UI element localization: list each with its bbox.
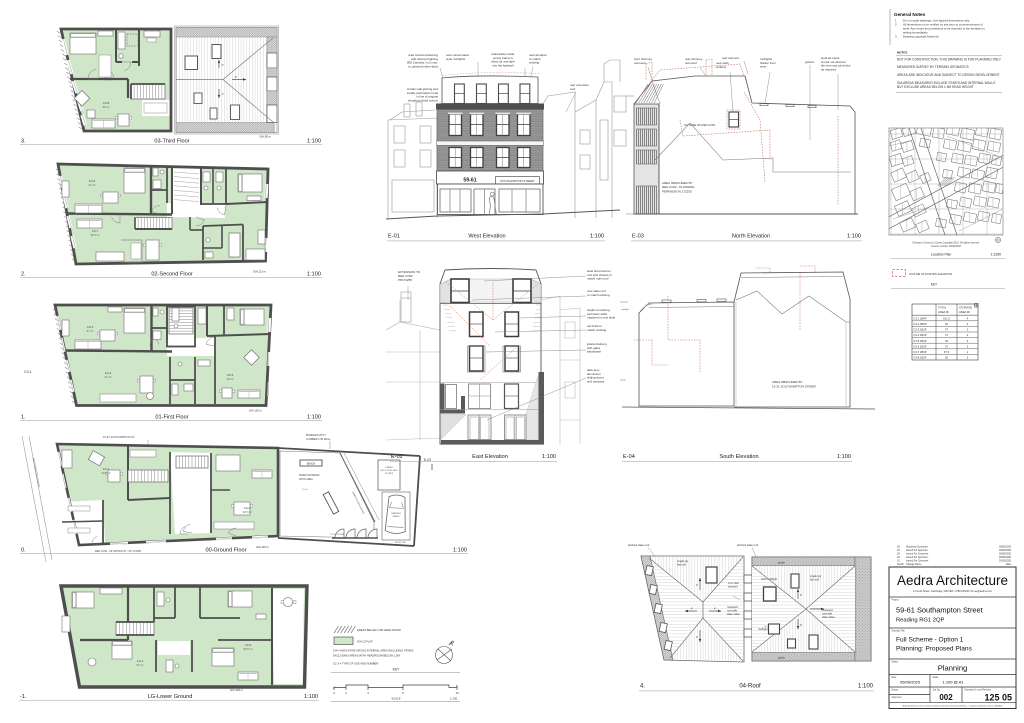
svg-text:AREA OBSCURED BY: AREA OBSCURED BY — [772, 380, 803, 384]
svg-text:PERMISSION 172255: PERMISSION 172255 — [662, 189, 692, 193]
svg-text:03-Third Floor: 03-Third Floor — [154, 139, 189, 145]
svg-text:West Elevation: West Elevation — [468, 234, 505, 240]
svg-text:04-Roof: 04-Roof — [739, 684, 761, 690]
svg-text:RECYCLING BINS: RECYCLING BINS — [381, 470, 399, 472]
svg-text:RevID: RevID — [897, 563, 904, 566]
svg-text:1:100: 1:100 — [590, 234, 604, 240]
svg-text:GIA C3 FLAT: GIA C3 FLAT — [357, 640, 373, 644]
svg-text:STORAGE: STORAGE — [959, 306, 972, 310]
svg-text:2.: 2. — [21, 272, 26, 278]
svg-text:flat roof: flat roof — [810, 577, 819, 581]
svg-text:40.5 m²: 40.5 m² — [243, 510, 252, 514]
svg-text:SCALE: SCALE — [391, 697, 400, 701]
svg-text:to painted timber facia: to painted timber facia — [408, 64, 438, 68]
svg-text:matched in new build: matched in new build — [587, 316, 616, 320]
svg-text:C3-3 1B1P: C3-3 1B1P — [913, 328, 926, 332]
svg-text:KEY: KEY — [931, 283, 938, 287]
svg-text:1:1250: 1:1250 — [991, 252, 1001, 256]
svg-text:Drawing copyright Aedra ltd.: Drawing copyright Aedra ltd. — [903, 35, 939, 39]
svg-text:52.5 m²: 52.5 m² — [91, 233, 100, 237]
svg-text:C3-6: C3-6 — [89, 179, 96, 183]
svg-text:C1-3 = TYPE OF USE AND NUMBER: C1-3 = TYPE OF USE AND NUMBER — [333, 662, 378, 666]
svg-text:4°: 4° — [800, 594, 802, 597]
svg-text:94: 94 — [945, 322, 948, 326]
svg-text:Project: Project — [892, 599, 900, 602]
svg-text:40 m²: 40 m² — [227, 377, 234, 381]
svg-text:to match existing: to match existing — [587, 293, 610, 297]
svg-text:01-First Floor: 01-First Floor — [155, 415, 188, 421]
svg-text:PARKING: PARKING — [391, 512, 401, 515]
svg-text:C3-6 1B1P: C3-6 1B1P — [913, 344, 926, 348]
svg-text:40: 40 — [945, 339, 948, 343]
svg-text:window: window — [716, 65, 727, 69]
svg-text:SPACE: SPACE — [392, 515, 400, 518]
svg-text:Change Name: Change Name — [906, 563, 922, 566]
svg-text:East Elevation: East Elevation — [472, 454, 508, 460]
svg-text:67.5: 67.5 — [944, 350, 950, 354]
svg-text:Date: Date — [1006, 563, 1012, 566]
svg-text:AOV rooflight: AOV rooflight — [761, 577, 777, 581]
svg-text:4°: 4° — [691, 608, 693, 611]
svg-text:C3-1: C3-1 — [103, 467, 110, 471]
svg-text:OUTLINE OF RED COW: OUTLINE OF RED COW — [684, 123, 715, 127]
svg-text:1:100 @ A1: 1:100 @ A1 — [943, 679, 965, 684]
svg-text:gutters: gutters — [805, 60, 815, 64]
svg-text:C3-2: C3-2 — [244, 506, 251, 510]
svg-text:35 m²: 35 m² — [103, 105, 110, 109]
svg-text:E-02: E-02 — [391, 454, 403, 460]
svg-text:GIA 115 m: GIA 115 m — [256, 545, 270, 549]
svg-text:CYCLE STORE: CYCLE STORE — [330, 534, 345, 536]
svg-text:1:100: 1:100 — [837, 454, 851, 460]
svg-text:removed: removed — [685, 61, 697, 65]
svg-text:mansard: mansard — [822, 608, 833, 612]
svg-text:55: 55 — [945, 356, 948, 360]
svg-text:C3-5: C3-5 — [227, 373, 234, 377]
svg-text:slate sides: slate sides — [822, 615, 835, 619]
svg-text:44.5 m²: 44.5 m² — [102, 471, 111, 475]
svg-text:4.: 4. — [640, 684, 645, 690]
svg-text:C3-1: C3-1 — [24, 370, 32, 374]
svg-text:match existing: match existing — [587, 328, 607, 332]
svg-text:flat roof: flat roof — [677, 562, 686, 566]
svg-text:1:100: 1:100 — [542, 454, 556, 460]
svg-text:Planning: Proposed Plans: Planning: Proposed Plans — [896, 646, 973, 653]
svg-text:Scale: Scale — [933, 677, 939, 679]
svg-text:4°: 4° — [696, 584, 698, 587]
svg-text:57 m²: 57 m² — [137, 663, 144, 667]
svg-text:11 South Street | Cambridge: 11 South Street | Cambridge | CB4 3EX | … — [913, 590, 992, 593]
svg-text:single ply: single ply — [677, 559, 689, 563]
svg-text:slate sides: slate sides — [727, 612, 740, 616]
svg-text:GIA 120 m: GIA 120 m — [249, 409, 263, 413]
svg-text:C3-2 2B4P: C3-2 2B4P — [913, 322, 926, 326]
svg-text:AREAS BELOW 1.5M HEAD ROOM: AREAS BELOW 1.5M HEAD ROOM — [357, 628, 401, 632]
svg-text:GIA 118 m: GIA 118 m — [230, 688, 244, 692]
svg-text:4°: 4° — [222, 93, 224, 96]
svg-text:4°: 4° — [800, 624, 802, 627]
svg-text:match main roof: match main roof — [587, 277, 609, 281]
svg-text:existing: existing — [529, 61, 540, 65]
svg-text:Status: Status — [892, 661, 899, 664]
svg-text:00-Ground Floor: 00-Ground Floor — [205, 548, 246, 554]
svg-text:4°: 4° — [696, 636, 698, 639]
svg-text:3.: 3. — [21, 139, 26, 145]
svg-text:Drawn: Drawn — [892, 689, 899, 692]
svg-text:NOTES: NOTES — [897, 50, 907, 54]
svg-text:Ordnance Survey (c) Crown Copy: Ordnance Survey (c) Crown Copyright 2019… — [912, 242, 980, 245]
svg-text:02-Second Floor: 02-Second Floor — [151, 272, 192, 278]
svg-text:10: 10 — [455, 691, 459, 695]
svg-text:37 m²: 37 m² — [89, 183, 96, 187]
svg-text:37: 37 — [945, 328, 948, 332]
svg-text:4°: 4° — [235, 75, 237, 79]
svg-text:view: view — [760, 65, 767, 69]
svg-text:pitched slate roof: pitched slate roof — [628, 543, 650, 547]
svg-text:-1.: -1. — [20, 694, 27, 700]
svg-text:License number 100022432: License number 100022432 — [931, 245, 961, 248]
svg-text:BORDERS WITH: BORDERS WITH — [306, 434, 326, 437]
svg-text:MEASURED SURVEY BY TERRAIN GEO: MEASURED SURVEY BY TERRAIN GEOMATICS — [897, 65, 969, 69]
svg-text:roof with: roof with — [822, 611, 833, 615]
svg-text:style rooflights: style rooflights — [446, 57, 466, 61]
svg-text:C3-4 1B1P: C3-4 1B1P — [913, 333, 926, 337]
svg-text:1:100: 1:100 — [307, 272, 321, 278]
svg-text:C3-7 2B3P: C3-7 2B3P — [913, 350, 926, 354]
svg-text:RED COW - 56 CROWN ST - PP 172: RED COW - 56 CROWN ST - PP 172255 — [95, 550, 142, 553]
svg-text:roof: roof — [570, 87, 575, 91]
svg-text:AREAS ARE INDICATIVE AND SUBJE: AREAS ARE INDICATIVE AND SUBJECT TO DESI… — [897, 73, 1000, 77]
svg-text:South Elevation: South Elevation — [719, 454, 758, 460]
svg-text:15-31 SOUTHAMPTON STREET: 15-31 SOUTHAMPTON STREET — [772, 385, 817, 389]
svg-text:rear dormers: rear dormers — [722, 56, 740, 60]
svg-text:101.5: 101.5 — [943, 316, 950, 320]
svg-text:PP172255: PP172255 — [398, 278, 412, 282]
svg-text:37 m²: 37 m² — [105, 375, 112, 379]
svg-text:37 m²: 37 m² — [87, 329, 94, 333]
svg-text:Date: Date — [892, 676, 898, 679]
svg-text:125 05: 125 05 — [984, 692, 1012, 702]
svg-text:Aedra Architecture Ltd is a li: Aedra Architecture Ltd is a limited comp… — [903, 704, 1003, 707]
svg-text:mansard: mansard — [727, 605, 738, 609]
svg-text:59-61 Southampton Street: 59-61 Southampton Street — [896, 606, 983, 615]
svg-text:CLIMBERS ON WALL: CLIMBERS ON WALL — [306, 438, 331, 441]
svg-text:PAVED STANDING: PAVED STANDING — [299, 474, 320, 477]
svg-text:4°: 4° — [714, 608, 716, 611]
svg-text:GIA 85 m: GIA 85 m — [259, 135, 271, 139]
svg-text:C3-2: C3-2 — [245, 643, 252, 647]
svg-text:Approved: Approved — [892, 696, 903, 699]
svg-text:and windows: and windows — [587, 379, 605, 383]
svg-text:GIA = INDICATIVE GROSS INTERNA: GIA = INDICATIVE GROSS INTERNAL AREA INC… — [333, 649, 414, 653]
svg-text:Drawing Title: Drawing Title — [892, 630, 906, 633]
svg-text:Job No.: Job No. — [933, 690, 941, 692]
svg-text:C3-3: C3-3 — [87, 325, 94, 329]
svg-text:C3-1: C3-1 — [137, 659, 144, 663]
svg-text:rooflight: rooflight — [758, 627, 768, 631]
svg-text:C3-7: C3-7 — [92, 229, 99, 233]
svg-text:shopfront (lead colour): shopfront (lead colour) — [408, 98, 438, 102]
svg-text:C3-8: C3-8 — [103, 101, 110, 105]
svg-text:E-04: E-04 — [623, 454, 635, 460]
svg-text:BUT EXCLUDE AREAS BELOW 1.5M H: BUT EXCLUDE AREAS BELOW 1.5M HEAD HEIGHT — [897, 85, 974, 89]
svg-text:OUTLINE OF EXISTING ELEVATION: OUTLINE OF EXISTING ELEVATION — [909, 272, 952, 276]
svg-text:37: 37 — [945, 344, 948, 348]
svg-text:0.: 0. — [21, 548, 26, 554]
svg-text:1:100: 1:100 — [307, 415, 321, 421]
svg-text:LG-Lower Ground: LG-Lower Ground — [148, 694, 193, 700]
svg-text:TIMBER: TIMBER — [385, 467, 393, 469]
svg-text:AREA M²: AREA M² — [938, 310, 949, 314]
svg-text:BIN STORE: BIN STORE — [395, 542, 406, 544]
svg-text:1:100: 1:100 — [858, 684, 874, 690]
svg-text:4°: 4° — [222, 64, 224, 67]
svg-text:gutter: gutter — [778, 561, 785, 565]
svg-text:balustrade: balustrade — [587, 350, 601, 354]
svg-text:Location Plan: Location Plan — [931, 252, 952, 256]
svg-text:into the lightwell: into the lightwell — [492, 63, 514, 67]
svg-text:E-01: E-01 — [388, 234, 400, 240]
svg-text:removed: removed — [634, 61, 646, 65]
svg-text:Drawing No. and Revision: Drawing No. and Revision — [965, 689, 992, 692]
svg-text:dormers: dormers — [728, 584, 739, 588]
svg-text:GIA 113 m: GIA 113 m — [253, 270, 267, 274]
svg-text:SOUTHAMPTON STREET: SOUTHAMPTON STREET — [500, 179, 535, 183]
svg-text:single ply: single ply — [810, 574, 822, 578]
svg-text:rooflight: rooflight — [621, 308, 629, 311]
svg-text:C3-5 1B1P: C3-5 1B1P — [913, 339, 926, 343]
svg-text:27 m²: 27 m² — [302, 488, 308, 491]
svg-text:KEY: KEY — [393, 668, 401, 672]
svg-text:1:100: 1:100 — [453, 548, 467, 554]
svg-text:roof with: roof with — [727, 608, 738, 612]
svg-text:Aedra Architecture: Aedra Architecture — [897, 573, 1008, 588]
svg-text:Full Scheme - Option 1: Full Scheme - Option 1 — [896, 637, 964, 644]
svg-text:53.5 m²: 53.5 m² — [244, 647, 253, 651]
svg-text:05/06/2025: 05/06/2025 — [900, 679, 921, 684]
svg-text:TOTAL: TOTAL — [938, 306, 947, 310]
svg-text:gutter: gutter — [778, 656, 785, 660]
svg-text:STORES: STORES — [385, 473, 394, 475]
svg-text:1:100: 1:100 — [307, 139, 321, 145]
svg-text:EXCLUDING AREAS WITH HEADROOM: EXCLUDING AREAS WITH HEADROOM BELOW 1.5M — [333, 654, 401, 658]
svg-text:002: 002 — [939, 693, 953, 702]
svg-text:E-03: E-03 — [632, 234, 644, 240]
svg-text:15-31 SOUTHAMPTON ST: 15-31 SOUTHAMPTON ST — [103, 435, 135, 439]
svg-text:North Elevation: North Elevation — [732, 234, 770, 240]
svg-text:59-61: 59-61 — [463, 178, 476, 184]
svg-text:General Notes: General Notes — [894, 12, 926, 17]
svg-text:37: 37 — [945, 333, 948, 337]
svg-text:C3-1 2B4P: C3-1 2B4P — [913, 316, 926, 320]
svg-text:1:100: 1:100 — [304, 694, 318, 700]
svg-text:NOT FOR CONSTRUCTION. THIS DRA: NOT FOR CONSTRUCTION. THIS DRAWING IS FO… — [897, 57, 1002, 61]
svg-text:AREA M²: AREA M² — [959, 310, 970, 314]
svg-text:pitched slate roof: pitched slate roof — [737, 543, 759, 547]
svg-text:1:100: 1:100 — [450, 697, 457, 701]
svg-text:Reading RG1 2QP: Reading RG1 2QP — [896, 618, 944, 624]
svg-text:Planning: Planning — [938, 663, 968, 672]
svg-text:as required: as required — [821, 67, 836, 71]
svg-text:C3-4: C3-4 — [105, 371, 112, 375]
svg-text:1.: 1. — [21, 415, 26, 421]
svg-text:C3-8 1B2P: C3-8 1B2P — [913, 356, 926, 360]
svg-text:BENCH: BENCH — [307, 462, 316, 465]
svg-text:PATIO AREA: PATIO AREA — [299, 478, 313, 481]
svg-text:zinc clad: zinc clad — [728, 581, 739, 585]
svg-text:1:100: 1:100 — [847, 234, 861, 240]
